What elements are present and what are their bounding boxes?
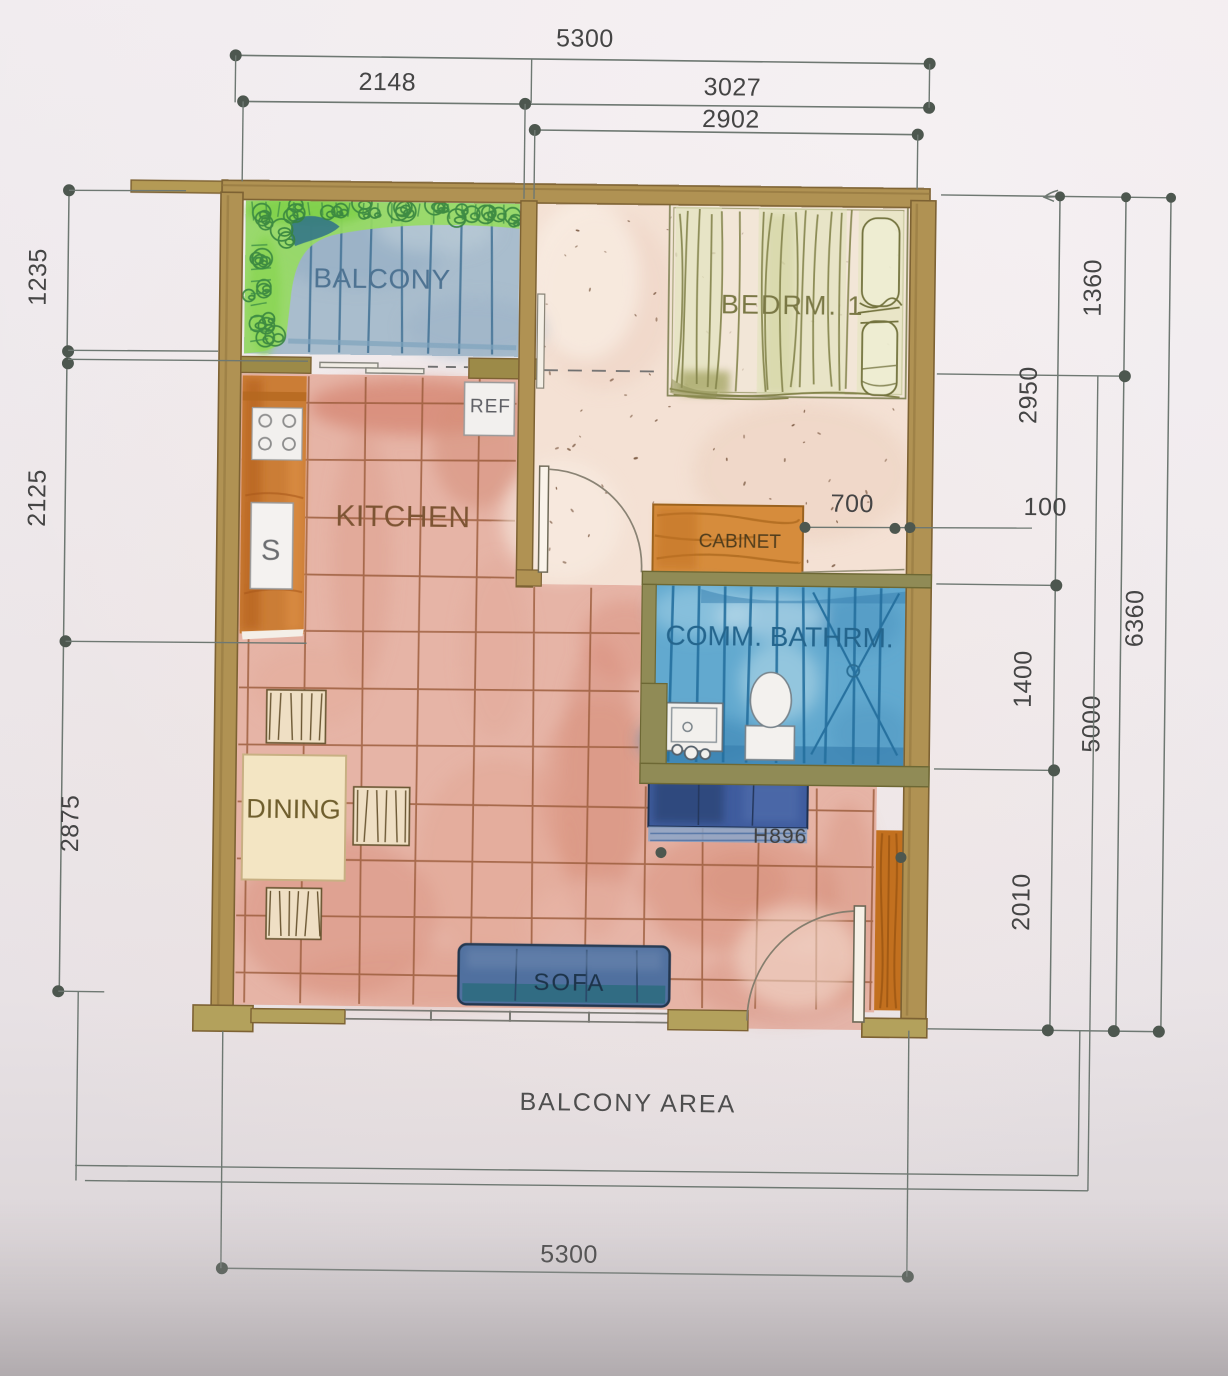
svg-text:2148: 2148 [358, 68, 416, 97]
svg-text:COMM. BATHRM.: COMM. BATHRM. [665, 620, 894, 654]
svg-text:REF: REF [470, 396, 511, 417]
svg-text:1360: 1360 [1079, 259, 1108, 317]
svg-text:H896: H896 [753, 825, 807, 849]
svg-text:2875: 2875 [56, 794, 85, 852]
svg-text:5000: 5000 [1077, 695, 1106, 753]
svg-text:700: 700 [830, 490, 874, 519]
svg-text:2010: 2010 [1007, 873, 1036, 931]
svg-text:2125: 2125 [23, 469, 52, 527]
svg-text:2902: 2902 [702, 105, 760, 134]
svg-text:1400: 1400 [1009, 650, 1038, 708]
svg-text:100: 100 [1023, 493, 1067, 522]
svg-text:KITCHEN: KITCHEN [335, 500, 471, 535]
svg-text:2950: 2950 [1014, 366, 1043, 424]
svg-text:SOFA: SOFA [533, 969, 605, 997]
svg-text:BALCONY AREA: BALCONY AREA [519, 1088, 736, 1119]
svg-text:CABINET: CABINET [698, 531, 781, 553]
svg-text:BALCONY: BALCONY [313, 262, 451, 295]
svg-text:1235: 1235 [24, 248, 53, 306]
svg-text:5300: 5300 [556, 24, 614, 53]
svg-text:BEDRM. 1: BEDRM. 1 [721, 289, 865, 321]
svg-text:S: S [261, 535, 281, 567]
svg-text:6360: 6360 [1121, 589, 1150, 647]
svg-text:DINING: DINING [246, 794, 341, 825]
svg-text:3027: 3027 [703, 73, 761, 102]
